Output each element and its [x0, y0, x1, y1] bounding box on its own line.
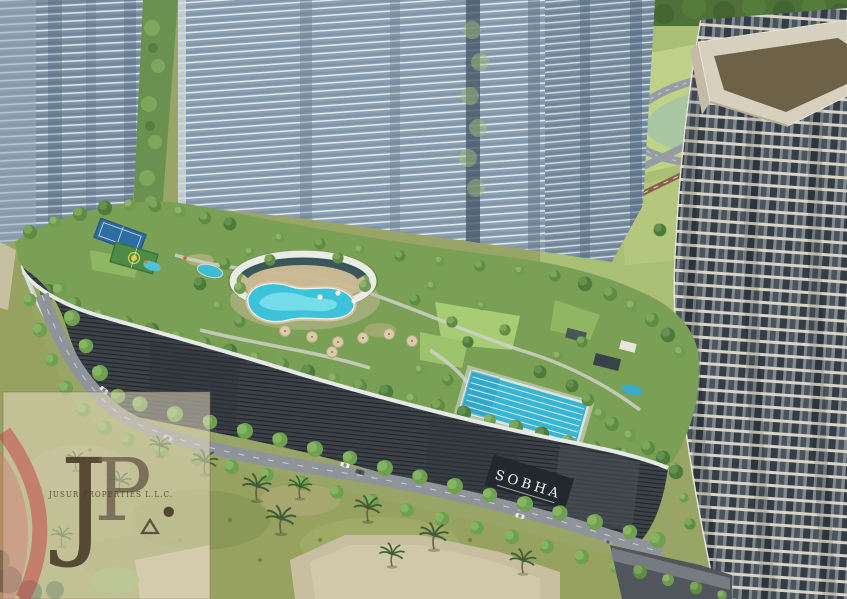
tree-icon — [650, 532, 666, 548]
umbrella-icon — [358, 333, 369, 344]
pool-umbrella-icon — [335, 290, 340, 295]
tree-icon — [470, 521, 484, 535]
tree-icon — [224, 218, 237, 231]
tree-icon — [515, 266, 525, 276]
pool-umbrella-icon — [317, 294, 322, 299]
tree-icon — [314, 238, 325, 249]
company-name: JUSUR PROPERTIES L.L.C. — [48, 489, 173, 499]
tree-icon — [462, 336, 473, 347]
tree-icon — [679, 493, 689, 503]
tree-icon — [552, 505, 567, 520]
tree-icon — [377, 460, 393, 476]
tree-icon — [199, 212, 212, 225]
tree-icon — [124, 199, 136, 211]
tree-icon — [442, 374, 453, 385]
tree-icon — [505, 530, 519, 544]
tree-icon — [661, 328, 675, 342]
window-streak — [86, 0, 96, 245]
tree-icon — [237, 423, 253, 439]
tree-icon — [684, 518, 695, 529]
tree-icon — [549, 270, 560, 281]
tree-icon — [534, 366, 547, 379]
tree-icon — [264, 254, 275, 265]
umbrella-icon — [333, 337, 344, 348]
window-streak — [300, 0, 312, 255]
playground — [183, 256, 187, 260]
tree-icon — [53, 283, 67, 297]
tree-icon — [149, 200, 162, 213]
tree-icon — [46, 354, 59, 367]
tree-icon — [245, 247, 255, 257]
tree-icon — [272, 432, 287, 447]
tree-icon — [633, 565, 647, 579]
tree-icon — [23, 225, 37, 239]
umbrella-icon — [407, 336, 418, 347]
tree-icon — [626, 300, 638, 312]
scene-svg: SOBHA — [0, 0, 847, 599]
tree-icon — [603, 287, 617, 301]
tree-icon — [435, 512, 449, 526]
tree-icon — [234, 282, 246, 294]
watermark: J P . JUSUR PROPERTIES L.L.C. — [0, 392, 210, 599]
window-streak — [528, 0, 540, 255]
rendering-canvas: SOBHA — [0, 0, 847, 599]
tree-icon — [474, 260, 485, 271]
tree-icon — [98, 201, 112, 215]
umbrella-icon — [327, 347, 338, 358]
playground — [144, 260, 148, 264]
window-streak — [390, 0, 400, 255]
tree-icon — [79, 339, 93, 353]
tree-icon — [427, 281, 437, 291]
tree-icon — [400, 503, 414, 517]
tree-icon — [409, 294, 420, 305]
tree-icon — [605, 417, 619, 431]
tree-icon — [624, 430, 636, 442]
tree-icon — [446, 316, 457, 327]
tree-icon — [641, 441, 655, 455]
tree-icon — [578, 277, 592, 291]
tree-icon — [213, 301, 223, 311]
tree-icon — [478, 302, 486, 310]
tree-icon — [307, 441, 323, 457]
tree-icon — [332, 252, 343, 263]
tree-icon — [174, 206, 186, 218]
tree-icon — [64, 310, 80, 326]
tree-icon — [540, 540, 554, 554]
tree-icon — [623, 525, 637, 539]
tree-icon — [49, 216, 61, 228]
umbrella-icon — [384, 329, 395, 340]
tree-icon — [394, 250, 405, 261]
tree-icon — [275, 233, 285, 243]
tree-icon — [225, 460, 239, 474]
left-tower-edge-face — [0, 0, 36, 250]
tree-icon — [690, 582, 703, 595]
window-streak — [580, 0, 590, 265]
umbrella-icon — [280, 326, 291, 337]
tree-icon — [662, 574, 674, 586]
tree-icon — [575, 550, 589, 564]
tree-icon — [553, 351, 563, 361]
tree-icon — [669, 465, 683, 479]
tree-icon — [483, 488, 497, 502]
tree-icon — [194, 278, 207, 291]
tree-icon — [499, 324, 510, 335]
tree-icon — [73, 207, 87, 221]
tree-icon — [675, 347, 686, 358]
tree-icon — [415, 365, 425, 375]
lagoon-pool — [248, 284, 357, 322]
tree-icon — [447, 478, 463, 494]
tree-icon — [24, 294, 37, 307]
tree-icon — [594, 408, 606, 420]
tree-icon — [355, 245, 365, 255]
tree-icon — [330, 485, 344, 499]
tree-icon — [576, 336, 587, 347]
window-streak — [48, 0, 62, 245]
tree-icon — [234, 316, 245, 327]
pool-umbrella-icon — [351, 298, 356, 303]
tree-icon — [412, 469, 427, 484]
tree-icon — [359, 280, 371, 292]
umbrella-icon — [307, 332, 318, 343]
tree-icon — [92, 365, 108, 381]
tree-icon — [582, 394, 595, 407]
tree-icon — [219, 258, 230, 269]
tree-icon — [587, 514, 603, 530]
tree-icon — [517, 496, 533, 512]
tree-icon — [645, 313, 659, 327]
tree-icon — [435, 256, 445, 266]
tree-icon — [654, 224, 667, 237]
tree-icon — [33, 323, 47, 337]
tree-icon — [566, 380, 579, 393]
